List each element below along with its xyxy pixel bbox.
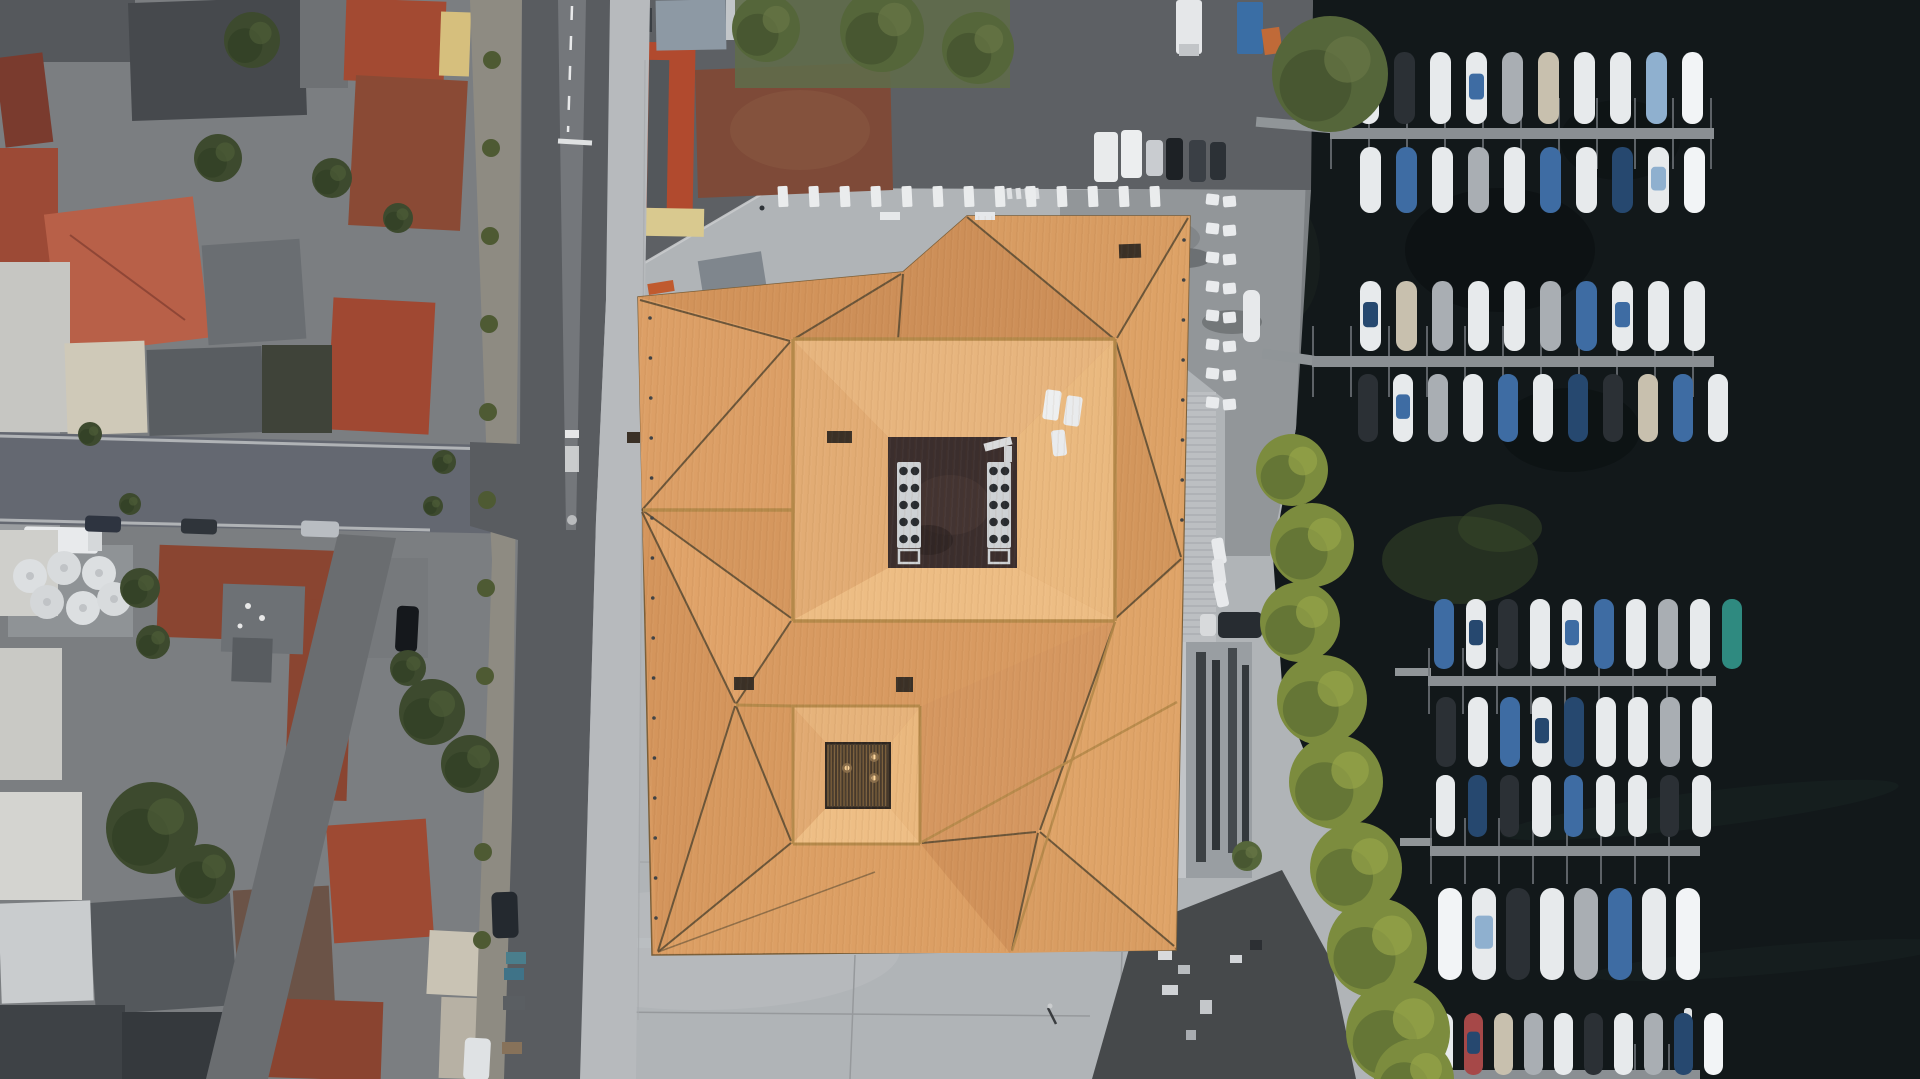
boat: [1432, 281, 1453, 351]
bench: [880, 212, 900, 220]
boat: [1574, 52, 1595, 124]
arcade-post: [1181, 438, 1185, 442]
plaza-table: [870, 186, 881, 207]
courtyard-louvered: [826, 743, 890, 808]
tree-light: [1246, 846, 1258, 858]
roof-vent: [734, 677, 754, 690]
boat: [1608, 888, 1632, 980]
hvac-fan: [989, 535, 998, 544]
terrace-furniture: [245, 603, 251, 609]
boat-cover: [1565, 620, 1579, 645]
boat: [1676, 888, 1700, 980]
arcade-post: [649, 396, 653, 400]
boat: [1638, 374, 1658, 442]
roof-panel-dark: [647, 60, 670, 208]
boat: [1596, 697, 1616, 767]
chair: [1223, 253, 1237, 265]
roof-dark-block: [128, 0, 307, 121]
hvac-fan: [989, 484, 998, 493]
tree-light: [443, 454, 453, 464]
arcade-post: [653, 756, 657, 760]
parked-car-silver: [1146, 140, 1163, 176]
tree-light: [1351, 838, 1388, 875]
road-marking: [565, 430, 579, 438]
boat: [1498, 374, 1518, 442]
tree-light: [763, 6, 790, 33]
boat: [1506, 888, 1530, 980]
boat: [1538, 52, 1559, 124]
plaza-table: [1025, 186, 1036, 207]
skylight-slot: [1196, 652, 1206, 862]
road-marking: [565, 446, 579, 472]
boat: [1394, 52, 1415, 124]
tree-light: [129, 497, 138, 506]
boat: [1564, 775, 1583, 837]
plaza-table: [994, 186, 1005, 207]
boat: [1564, 697, 1584, 767]
boat-cover: [1651, 167, 1666, 191]
hvac-fan: [911, 467, 920, 476]
boat: [1463, 374, 1483, 442]
hvac-fan: [989, 467, 998, 476]
roof-gray: [88, 893, 237, 1015]
car-black: [395, 605, 419, 652]
plaza-table: [777, 186, 788, 207]
boat: [1524, 1013, 1543, 1075]
arcade-post: [648, 316, 652, 320]
boat: [1648, 281, 1669, 351]
plaza-table: [1087, 186, 1098, 207]
marina-pier: [1330, 128, 1714, 139]
layer-roof: [627, 216, 1190, 955]
boat: [1660, 697, 1680, 767]
plaza-table: [808, 186, 819, 207]
boat: [1614, 1013, 1633, 1075]
boat: [1628, 775, 1647, 837]
plaza-table: [1056, 186, 1067, 207]
chair: [1223, 224, 1237, 236]
tree-light: [1324, 36, 1370, 82]
tree-light: [1372, 916, 1412, 956]
roof-red: [344, 0, 447, 84]
yard-crate: [1186, 1030, 1196, 1040]
plaza-table: [932, 186, 943, 207]
roof-vent: [1119, 244, 1141, 259]
cream-building: [64, 341, 147, 436]
boat: [1468, 775, 1487, 837]
boat: [1684, 281, 1705, 351]
boat: [1540, 888, 1564, 980]
car-dark: [85, 515, 122, 532]
boat: [1494, 1013, 1513, 1075]
boat: [1468, 697, 1488, 767]
arcade-post: [649, 436, 653, 440]
roof-vent: [627, 432, 640, 443]
boat: [1692, 775, 1711, 837]
dumpster-teal: [504, 968, 524, 980]
yard-crate: [1178, 965, 1190, 974]
marina-pier: [1430, 846, 1700, 856]
hvac-fan: [1001, 501, 1010, 510]
boat-cover: [1469, 620, 1483, 645]
tree-light: [89, 426, 99, 436]
boat: [1438, 888, 1462, 980]
chair: [1223, 311, 1237, 323]
umbrella-hub: [43, 598, 51, 606]
arcade-post: [650, 476, 654, 480]
chair: [1205, 280, 1219, 292]
tree-light: [432, 500, 440, 508]
boat: [1603, 374, 1623, 442]
boat: [1576, 147, 1597, 213]
gangway: [1400, 838, 1432, 846]
boat: [1610, 52, 1631, 124]
parked-car-dark: [1189, 140, 1206, 182]
arcade-post: [650, 516, 654, 520]
hvac-fan: [1001, 484, 1010, 493]
boat: [1584, 1013, 1603, 1075]
person: [1048, 1004, 1053, 1009]
boat: [1660, 775, 1679, 837]
marina-pier: [1428, 676, 1716, 686]
car-dark: [181, 518, 218, 534]
boat: [1360, 147, 1381, 213]
boat: [1504, 147, 1525, 213]
plaza-table: [839, 186, 850, 207]
hedge-bush: [480, 315, 498, 333]
umbrella-hub: [95, 569, 103, 577]
boat: [1500, 697, 1520, 767]
boat: [1674, 1013, 1693, 1075]
boat: [1434, 599, 1454, 669]
tree-light: [974, 25, 1003, 54]
boat: [1612, 147, 1633, 213]
parked-car-black: [1166, 138, 1183, 180]
boat: [1396, 147, 1417, 213]
parked-van-white: [1094, 132, 1118, 182]
arcade-post: [652, 676, 656, 680]
boat: [1532, 775, 1551, 837]
boat: [1436, 775, 1455, 837]
roof-red: [327, 297, 436, 434]
marina-pier: [1312, 356, 1714, 367]
arcade-post: [1181, 358, 1185, 362]
boat: [1646, 52, 1667, 124]
arcade-post: [1180, 518, 1184, 522]
roof-red: [326, 819, 434, 944]
boat: [1540, 281, 1561, 351]
chair: [1205, 396, 1219, 408]
hvac-fan: [911, 535, 920, 544]
dumpster-gray: [503, 996, 525, 1010]
skylight-slot: [1228, 648, 1237, 853]
boat-on-trailer: [1243, 290, 1260, 342]
chair: [1223, 340, 1237, 352]
hvac-fan: [899, 501, 908, 510]
tree-light: [1331, 751, 1369, 789]
chair: [1205, 193, 1219, 205]
hvac-fan: [1001, 467, 1010, 476]
tree-light: [330, 165, 346, 181]
tree-light: [202, 855, 226, 879]
white-building: [0, 648, 62, 780]
tower-roof: [231, 637, 273, 682]
hvac-fan: [911, 501, 920, 510]
boat: [1530, 599, 1550, 669]
umbrella-hub: [79, 604, 87, 612]
arcade-post: [1182, 318, 1186, 322]
aerial-photo-canvas: [0, 0, 1920, 1079]
hedge-bush: [482, 139, 500, 157]
boat: [1594, 599, 1614, 669]
boat: [1468, 281, 1489, 351]
boat: [1644, 1013, 1663, 1075]
arcade-post: [652, 716, 656, 720]
chair: [1205, 309, 1219, 321]
dumpster-teal: [506, 952, 526, 964]
yard-crate: [1158, 950, 1172, 960]
plaza-table: [963, 186, 974, 207]
roof-gray: [300, 0, 348, 88]
arcade-post: [653, 836, 657, 840]
hvac-fan: [989, 518, 998, 527]
boat-cover: [1615, 302, 1630, 327]
roof-gray: [0, 0, 135, 62]
boat: [1658, 599, 1678, 669]
shallow-patch: [1458, 504, 1542, 552]
aerial-photo: [0, 0, 1920, 1079]
skylight-slot: [1242, 665, 1249, 845]
yellow-facade: [439, 11, 471, 76]
hvac-fan: [899, 535, 908, 544]
blue-gray-house: [656, 0, 727, 51]
roof-mottle: [730, 90, 870, 170]
boat: [1498, 599, 1518, 669]
boat: [1430, 52, 1451, 124]
tree-light: [138, 575, 154, 591]
boat-cover: [1475, 916, 1493, 949]
boat: [1574, 888, 1598, 980]
parked-van-white: [1121, 130, 1142, 178]
boat-cover: [1469, 74, 1484, 100]
dumpster-brown: [502, 1042, 522, 1054]
hedge-bush: [479, 403, 497, 421]
yard-bin: [1250, 940, 1262, 950]
truck-cab: [88, 529, 102, 551]
boat-cover: [1363, 302, 1378, 327]
tree-light: [1308, 518, 1342, 552]
tree-light: [397, 208, 409, 220]
tree-light: [1296, 596, 1328, 628]
arcade-post: [651, 636, 655, 640]
hvac-fan: [899, 484, 908, 493]
gangway: [1395, 668, 1431, 676]
yard-crate: [1162, 985, 1178, 995]
plaza-table: [901, 186, 912, 207]
boat: [1673, 374, 1693, 442]
boat-cover: [1396, 394, 1410, 418]
boat: [1722, 599, 1742, 669]
white-building: [0, 792, 82, 900]
roof-dark: [0, 1005, 125, 1079]
tree-light: [878, 3, 912, 37]
white-building: [0, 262, 70, 432]
tree-light: [1288, 447, 1317, 476]
chair: [1205, 338, 1219, 350]
boat: [1684, 147, 1705, 213]
road-marking: [567, 515, 577, 525]
hedge-bush: [477, 579, 495, 597]
boat: [1358, 374, 1378, 442]
hvac-fan: [989, 501, 998, 510]
boat-cover: [1535, 718, 1549, 743]
rooftop-pipe: [1004, 446, 1012, 462]
boat: [1568, 374, 1588, 442]
hedge-bush: [474, 843, 492, 861]
tree-light: [249, 22, 271, 44]
boat: [1692, 697, 1712, 767]
roof-gray: [147, 346, 265, 436]
arcade-post: [1180, 478, 1184, 482]
umbrella-hub: [110, 595, 118, 603]
boat: [1626, 599, 1646, 669]
boat: [1396, 281, 1417, 351]
umbrella-hub: [60, 564, 68, 572]
tree-light: [467, 745, 490, 768]
boat: [1554, 1013, 1573, 1075]
roof-light: [0, 900, 94, 1003]
hedge-bush: [481, 227, 499, 245]
hedge-bush: [473, 931, 491, 949]
hedge-bush: [483, 51, 501, 69]
courtyard-dark: [262, 345, 332, 433]
stop-line: [558, 141, 592, 143]
car-silver: [301, 520, 340, 537]
arcade-post: [654, 876, 658, 880]
arcade-post: [653, 796, 657, 800]
boat-cover: [1467, 1032, 1480, 1054]
terrace-furniture: [238, 624, 243, 629]
hvac-fan: [899, 518, 908, 527]
boat: [1432, 147, 1453, 213]
umbrella-hub: [26, 572, 34, 580]
plaza-table: [1149, 186, 1160, 207]
yard-crate: [1200, 1000, 1212, 1014]
boat: [1642, 888, 1666, 980]
tree-light: [151, 631, 165, 645]
chair: [1223, 398, 1237, 410]
chair: [1205, 367, 1219, 379]
boat: [1576, 281, 1597, 351]
boat: [1540, 147, 1561, 213]
boat: [1436, 697, 1456, 767]
arcade-post: [651, 556, 655, 560]
tree-light: [216, 142, 235, 161]
boat: [1628, 697, 1648, 767]
boat: [1682, 52, 1703, 124]
car-driving: [491, 892, 519, 939]
arcade-post: [651, 596, 655, 600]
arcade-post: [649, 356, 653, 360]
boat: [1504, 281, 1525, 351]
terrace-furniture: [259, 615, 265, 621]
boat: [1704, 1013, 1723, 1075]
hvac-fan: [911, 484, 920, 493]
chair: [1223, 282, 1237, 294]
roof-slate: [202, 239, 307, 346]
boat: [1428, 374, 1448, 442]
roof-gold-ridge: [736, 705, 793, 706]
roof-vent: [827, 431, 852, 443]
tree-light: [1393, 998, 1435, 1040]
parked-car-dark: [1210, 142, 1226, 180]
tree-light: [1318, 671, 1354, 707]
boat: [1500, 775, 1519, 837]
van-dark: [1218, 612, 1262, 638]
boat: [1533, 374, 1553, 442]
chair: [1223, 369, 1237, 381]
skylight-slot: [1212, 660, 1220, 850]
hvac-fan: [899, 467, 908, 476]
tree-light: [429, 691, 455, 717]
arcade-post: [654, 916, 658, 920]
hedge-bush: [476, 667, 494, 685]
chair: [1205, 251, 1219, 263]
hvac-fan: [1001, 535, 1010, 544]
tree-light: [406, 656, 420, 670]
hedge-bush: [478, 491, 496, 509]
hvac-fan: [1001, 518, 1010, 527]
lounger: [1051, 429, 1068, 456]
car-white: [463, 1037, 491, 1079]
boat: [1690, 599, 1710, 669]
chair: [1223, 195, 1237, 207]
person: [760, 206, 765, 211]
chair: [1205, 222, 1219, 234]
plaza-table: [1118, 186, 1129, 207]
car-white-small: [1200, 614, 1216, 636]
hvac-fan: [911, 518, 920, 527]
boat: [1468, 147, 1489, 213]
tree-light: [147, 798, 184, 835]
arcade-post: [1181, 398, 1185, 402]
truck-cab: [1179, 44, 1199, 56]
arcade-post: [1182, 278, 1186, 282]
bench: [975, 212, 995, 220]
roof-vent: [896, 677, 913, 692]
boat: [1596, 775, 1615, 837]
boat: [1708, 374, 1728, 442]
boat: [1502, 52, 1523, 124]
shipping-container-blue: [1237, 2, 1263, 54]
yard-crate: [1230, 955, 1242, 963]
arcade-post: [1182, 238, 1186, 242]
